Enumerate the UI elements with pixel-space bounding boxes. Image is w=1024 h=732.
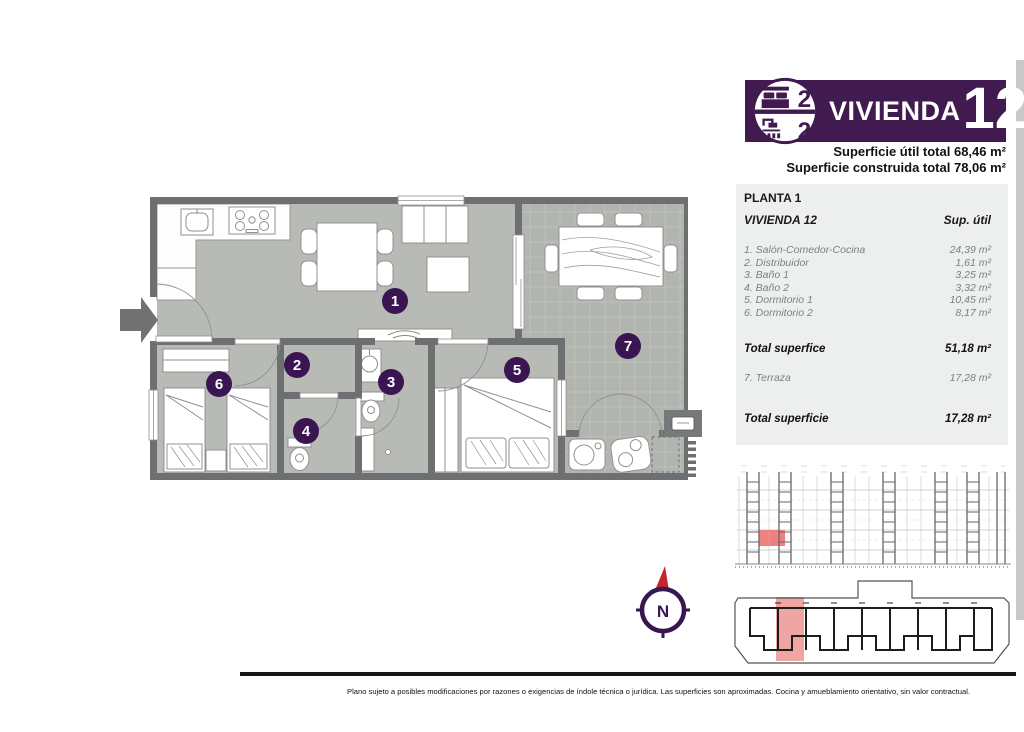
building-elevation-diagram: [733, 458, 1013, 576]
room-rows: 1. Salón-Comedor-Cocina 24,39 m² 2. Dist…: [744, 244, 991, 320]
ac-unit: [664, 410, 702, 437]
bathroom-count: 2: [798, 118, 812, 145]
entrance-arrow-icon: [120, 297, 158, 343]
room-area: 3,25 m²: [955, 269, 991, 282]
room-area: 1,61 m²: [955, 257, 991, 270]
table-row: 6. Dormitorio 2 8,17 m²: [744, 307, 991, 320]
total-label: Total superficie: [744, 413, 829, 425]
unit-highlight-siteplan: [776, 597, 804, 661]
room-marker-4: 4: [293, 418, 319, 444]
total-label: Total superfice: [744, 343, 825, 355]
total-value: 17,28 m²: [945, 413, 991, 425]
room-area: 3,32 m²: [955, 282, 991, 295]
disclaimer-text: Plano sujeto a posibles modificaciones p…: [347, 687, 970, 696]
room-area: 10,45 m²: [950, 294, 991, 307]
room-marker-5: 5: [504, 357, 530, 383]
table-row: 2. Distribuidor 1,61 m²: [744, 257, 991, 270]
superficie-util-line: Superficie útil total 68,46 m²: [786, 144, 1006, 160]
column-header: Sup. útil: [944, 213, 991, 227]
unit-number: 12: [963, 80, 1024, 138]
floor-label: PLANTA 1: [744, 191, 991, 205]
room-label: 1. Salón-Comedor-Cocina: [744, 244, 865, 257]
street-line: [240, 672, 1016, 676]
sofa: [402, 206, 468, 243]
unit-banner: 2 2 VIVIENDA 12: [745, 80, 1006, 142]
room-marker-3: 3: [378, 369, 404, 395]
edge-hatch: [688, 441, 696, 477]
coffee-table: [427, 257, 469, 292]
table-header-row: VIVIENDA 12 Sup. útil: [744, 213, 991, 227]
room-label: 4. Baño 2: [744, 282, 789, 295]
room-marker-2: 2: [284, 352, 310, 378]
floor-plan-drawing: [118, 190, 702, 490]
room-label: 6. Dormitorio 2: [744, 307, 813, 320]
superficie-construida-line: Superficie construida total 78,06 m²: [786, 160, 1006, 176]
site-plan-diagram: [728, 576, 1014, 671]
unit-title: VIVIENDA: [829, 96, 961, 127]
room-marker-7: 7: [615, 333, 641, 359]
total-terrace-row: Total superficie 17,28 m²: [744, 413, 991, 425]
table-row: 4. Baño 2 3,32 m²: [744, 282, 991, 295]
terrace-row: 7. Terraza 17,28 m²: [744, 372, 991, 384]
hob-icon: [229, 207, 275, 234]
room-label: 7. Terraza: [744, 372, 791, 384]
table-row: 5. Dormitorio 1 10,45 m²: [744, 294, 991, 307]
area-summary: Superficie útil total 68,46 m² Superfici…: [786, 144, 1006, 176]
table-row: 1. Salón-Comedor-Cocina 24,39 m²: [744, 244, 991, 257]
room-marker-1: 1: [382, 288, 408, 314]
room-marker-6: 6: [206, 371, 232, 397]
unit-label: VIVIENDA 12: [744, 213, 817, 227]
total-value: 51,18 m²: [945, 343, 991, 355]
table-row: 3. Baño 1 3,25 m²: [744, 269, 991, 282]
bedroom1-furniture: [433, 378, 554, 472]
compass: N: [632, 560, 694, 655]
room-label: 5. Dormitorio 1: [744, 294, 813, 307]
north-label: N: [657, 602, 669, 621]
page-edge-shadow: [1016, 60, 1024, 620]
floor-plan: 1 2 3 4 5 6 7: [118, 190, 702, 490]
room-area: 8,17 m²: [955, 307, 991, 320]
kitchen-sink-icon: [181, 209, 213, 235]
summary-table: PLANTA 1 VIVIENDA 12 Sup. útil 1. Salón-…: [736, 184, 1008, 445]
room-area: 17,28 m²: [950, 372, 991, 384]
bed-bath-badge-icon: 2 2: [749, 75, 821, 147]
washer-icon: [569, 439, 605, 470]
room-area: 24,39 m²: [950, 244, 991, 257]
total-interior-row: Total superfice 51,18 m²: [744, 343, 991, 355]
dryer-icon: [610, 435, 652, 473]
plan-sheet-page: 2 2 VIVIENDA 12 Superficie útil total 68…: [0, 0, 1024, 732]
room-label: 3. Baño 1: [744, 269, 789, 282]
room-label: 2. Distribuidor: [744, 257, 809, 270]
bedroom-count: 2: [798, 86, 812, 113]
